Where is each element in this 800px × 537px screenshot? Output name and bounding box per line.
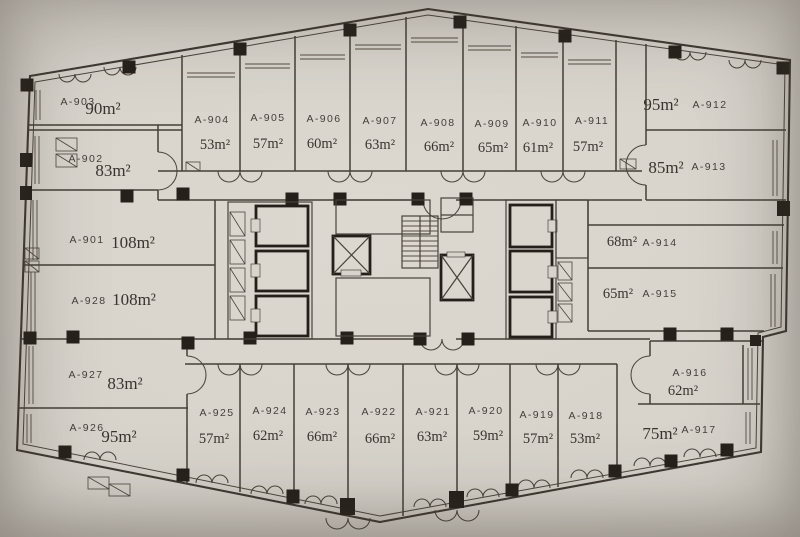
unit-a-903-label: A-903 90m² — [60, 96, 120, 118]
elevator-shaft — [510, 205, 552, 247]
unit-id-text: A-910 — [522, 117, 557, 129]
unit-area-text: 61m² — [523, 140, 554, 156]
unit-id-text: A-919 — [519, 409, 554, 421]
unit-a-924-label: A-924 62m² — [252, 405, 287, 444]
unit-a-923-label: A-923 66m² — [305, 406, 340, 445]
unit-id-text: A-904 — [194, 114, 229, 126]
unit-area-text: 66m² — [424, 139, 455, 155]
unit-area-text: 75m² — [642, 424, 677, 443]
unit-id-text: A-927 — [68, 369, 103, 381]
unit-area-text: 90m² — [85, 99, 120, 118]
unit-id-text: A-920 — [468, 405, 503, 417]
unit-id-text: A-906 — [306, 113, 341, 125]
unit-a-909-label: A-909 65m² — [474, 118, 509, 156]
unit-area-text: 68m² — [607, 234, 638, 250]
elevator-shaft — [256, 206, 308, 246]
unit-id-text: A-912 — [692, 99, 727, 111]
unit-a-904-label: A-904 53m² — [194, 114, 230, 153]
unit-id-text: A-908 — [420, 117, 455, 129]
unit-area-text: 57m² — [199, 431, 230, 447]
unit-a-915-label: 65m² A-915 — [603, 286, 678, 302]
right-elevator-bank — [506, 200, 588, 339]
unit-area-text: 60m² — [307, 136, 338, 152]
unit-area-text: 66m² — [365, 431, 396, 447]
unit-a-917-label: 75m² A-917 — [642, 424, 716, 443]
left-elevator-bank — [228, 202, 312, 339]
unit-area-text: 95m² — [643, 95, 678, 114]
unit-area-text: 62m² — [668, 383, 699, 399]
unit-a-912-label: 95m² A-912 — [643, 95, 727, 114]
unit-id-text: A-918 — [568, 410, 603, 422]
floor-plan-photo: A-901 108m² A-902 83m² A-903 90m² A-904 … — [0, 0, 800, 537]
unit-a-928-label: A-928 108m² — [71, 290, 155, 309]
unit-a-916-label: A-916 62m² — [668, 367, 708, 399]
unit-area-text: 53m² — [570, 431, 601, 447]
unit-id-text: A-907 — [362, 115, 397, 127]
elevator-shaft — [256, 296, 308, 336]
elevator-shaft — [256, 251, 308, 291]
unit-id-text: A-915 — [642, 288, 677, 300]
unit-a-906-label: A-906 60m² — [306, 113, 341, 152]
unit-area-text: 62m² — [253, 428, 284, 444]
unit-area-text: 108m² — [111, 233, 155, 252]
unit-area-text: 63m² — [417, 429, 448, 445]
unit-area-text: 95m² — [101, 427, 136, 446]
central-core — [333, 198, 473, 336]
unit-area-text: 57m² — [253, 136, 284, 152]
unit-area-text: 108m² — [112, 290, 156, 309]
unit-area-text: 83m² — [95, 161, 130, 180]
unit-id-text: A-921 — [415, 406, 450, 418]
unit-id-text: A-913 — [691, 161, 726, 173]
unit-a-910-label: A-910 61m² — [522, 117, 557, 156]
unit-a-902-label: A-902 83m² — [68, 153, 130, 180]
elevator-shaft — [510, 297, 552, 337]
elevator-shaft — [510, 251, 552, 292]
unit-id-text: A-916 — [672, 367, 707, 379]
unit-labels: A-901 108m² A-902 83m² A-903 90m² A-904 … — [60, 95, 727, 447]
unit-a-920-label: A-920 59m² — [468, 405, 503, 444]
unit-area-text: 85m² — [648, 158, 683, 177]
floor-plan: A-901 108m² A-902 83m² A-903 90m² A-904 … — [0, 0, 800, 537]
unit-id-text: A-901 — [69, 234, 104, 246]
unit-area-text: 59m² — [473, 428, 504, 444]
unit-area-text: 65m² — [603, 286, 634, 302]
unit-a-907-label: A-907 63m² — [362, 115, 397, 153]
unit-area-text: 83m² — [107, 374, 142, 393]
double-door-bursts — [158, 145, 650, 394]
unit-id-text: A-922 — [361, 406, 396, 418]
unit-area-text: 63m² — [365, 137, 396, 153]
unit-a-905-label: A-905 57m² — [250, 112, 285, 152]
unit-area-text: 65m² — [478, 140, 509, 156]
unit-a-922-label: A-922 66m² — [361, 406, 396, 447]
stairs-icon — [402, 216, 438, 268]
elevator-icon — [333, 236, 370, 276]
unit-area-text: 57m² — [523, 431, 554, 447]
unit-id-text: A-909 — [474, 118, 509, 130]
unit-a-913-label: 85m² A-913 — [648, 158, 726, 177]
unit-a-918-label: A-918 53m² — [568, 410, 603, 447]
unit-id-text: A-923 — [305, 406, 340, 418]
unit-a-911-label: A-911 57m² — [573, 115, 609, 155]
unit-a-927-label: A-927 83m² — [68, 369, 142, 393]
unit-a-921-label: A-921 63m² — [415, 406, 450, 445]
unit-id-text: A-914 — [642, 237, 677, 249]
unit-a-926-label: A-926 95m² — [69, 422, 136, 446]
unit-area-text: 66m² — [307, 429, 338, 445]
unit-id-text: A-925 — [199, 407, 234, 419]
unit-a-908-label: A-908 66m² — [420, 117, 455, 155]
unit-id-text: A-917 — [681, 424, 716, 436]
unit-a-914-label: 68m² A-914 — [607, 234, 678, 250]
unit-id-text: A-911 — [575, 115, 609, 127]
unit-area-text: 53m² — [200, 137, 231, 153]
unit-id-text: A-928 — [71, 295, 106, 307]
unit-a-901-label: A-901 108m² — [69, 233, 154, 252]
unit-id-text: A-924 — [252, 405, 287, 417]
unit-a-925-label: A-925 57m² — [199, 407, 235, 447]
unit-id-text: A-926 — [69, 422, 104, 434]
unit-area-text: 57m² — [573, 139, 604, 155]
elevator-icon — [441, 252, 473, 300]
unit-a-919-label: A-919 57m² — [519, 409, 554, 447]
unit-id-text: A-905 — [250, 112, 285, 124]
